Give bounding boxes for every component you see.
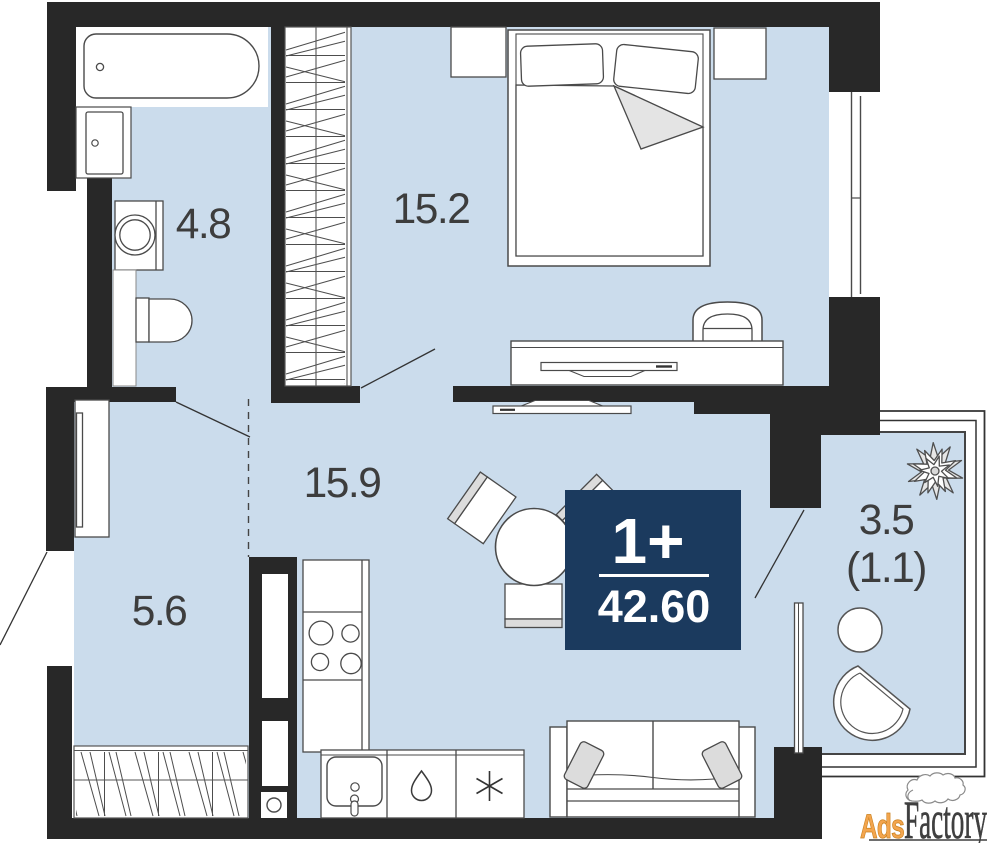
svg-text:5.6: 5.6	[132, 588, 187, 635]
svg-text:(1.1): (1.1)	[846, 545, 926, 592]
svg-text:Factory: Factory	[904, 790, 987, 843]
svg-text:15.9: 15.9	[304, 460, 381, 507]
svg-text:42.60: 42.60	[598, 581, 711, 632]
svg-text:4.8: 4.8	[176, 201, 231, 248]
svg-text:15.2: 15.2	[393, 186, 470, 233]
svg-text:1+: 1+	[612, 505, 685, 577]
svg-text:Ads: Ads	[860, 808, 904, 843]
svg-text:3.5: 3.5	[859, 497, 914, 544]
